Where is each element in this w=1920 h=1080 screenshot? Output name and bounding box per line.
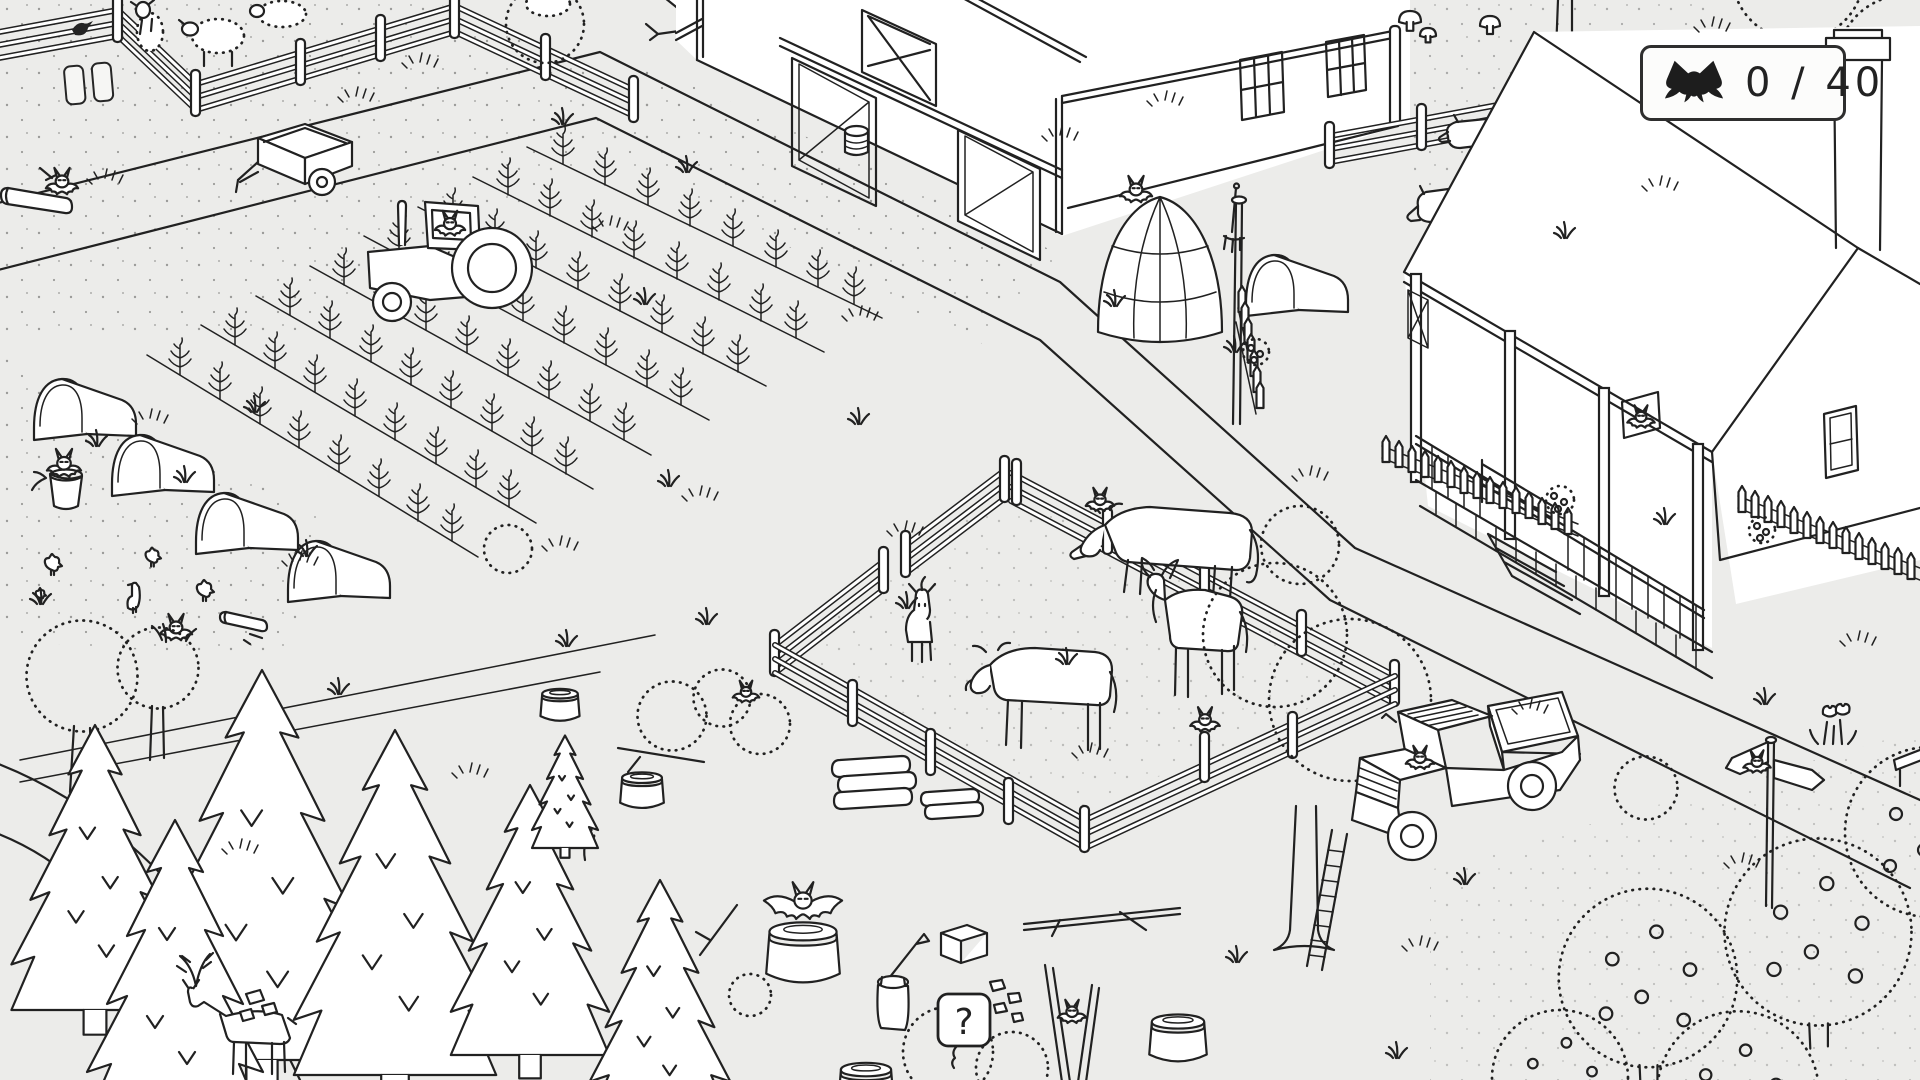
milk-churn xyxy=(877,934,929,1030)
bat-behind-stump[interactable] xyxy=(764,882,842,919)
fallen-branch xyxy=(1024,908,1180,936)
pickup-truck xyxy=(1352,692,1580,860)
game-stage: ? xyxy=(0,0,1920,1080)
barrel xyxy=(845,126,868,155)
bat-counter-text: 0 / 40 xyxy=(1745,60,1884,106)
pause-bar-icon xyxy=(90,61,114,103)
pause-bar-icon xyxy=(63,64,87,106)
greenhouse-hut xyxy=(1246,255,1348,316)
hint-bubble[interactable]: ? xyxy=(938,994,990,1068)
big-stump xyxy=(766,922,840,982)
stones xyxy=(990,980,1023,1022)
bush xyxy=(484,525,532,573)
stump xyxy=(838,1063,893,1080)
crate xyxy=(941,925,987,963)
tulips xyxy=(1810,704,1856,744)
yurt-tent xyxy=(1098,197,1222,342)
bat-counter-badge: 0 / 40 xyxy=(1640,45,1846,121)
bat-icon xyxy=(1663,59,1725,107)
farm-scene: ? xyxy=(0,0,1920,1080)
stump xyxy=(1149,1015,1207,1062)
hint-label: ? xyxy=(954,1002,973,1043)
bat-in-branch[interactable] xyxy=(1058,1000,1087,1023)
bushes-center xyxy=(638,670,791,755)
bat-on-cow-head[interactable] xyxy=(1086,488,1115,511)
forked-branch xyxy=(1045,965,1099,1080)
pause-button[interactable] xyxy=(64,62,116,106)
pine-forest xyxy=(11,670,730,1080)
